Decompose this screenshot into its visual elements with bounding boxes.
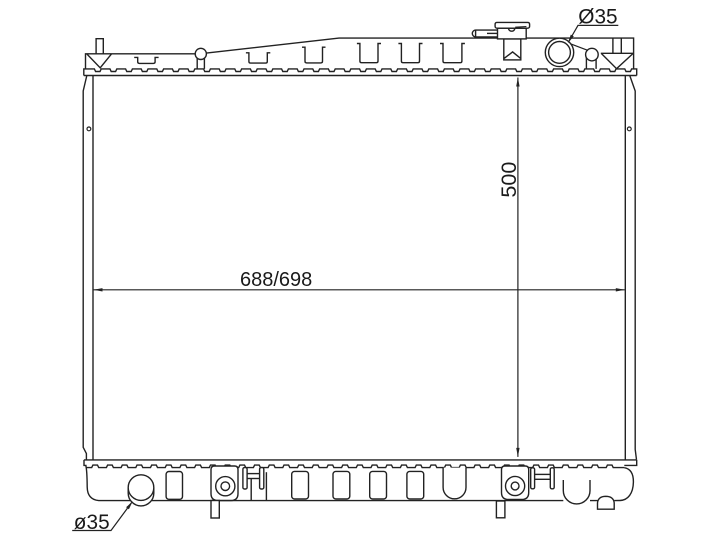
svg-text:Ø35: Ø35 [578,6,617,29]
svg-text:500: 500 [496,162,521,198]
svg-text:688/698: 688/698 [240,269,312,291]
svg-text:ø35: ø35 [74,511,110,534]
